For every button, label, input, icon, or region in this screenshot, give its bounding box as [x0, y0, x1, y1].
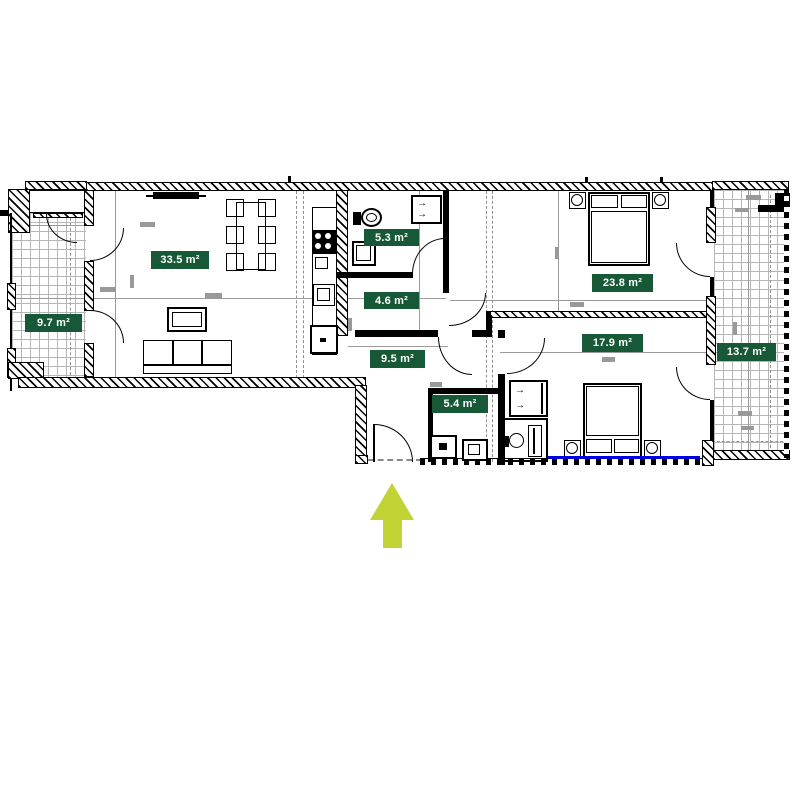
- hall-door-arc: [449, 293, 486, 326]
- wall-bottom-living: [18, 377, 366, 388]
- room-area-badge: 13.7 m²: [717, 343, 776, 361]
- wall-seg: [706, 207, 716, 243]
- sofa: [143, 340, 232, 374]
- stove-burner: [315, 233, 321, 239]
- room-area-badge: 4.6 m²: [364, 292, 419, 309]
- wall-entrance-foot: [355, 455, 368, 464]
- bedroom2-balcony-door-arc: [676, 367, 710, 400]
- dimension-line: [348, 346, 448, 347]
- shower-line: [533, 428, 535, 454]
- room-area-badge: 17.9 m²: [582, 334, 643, 352]
- kitchen-appliance: [315, 257, 328, 269]
- room-area-badge: 5.3 m²: [364, 229, 419, 246]
- wall-seg: [7, 283, 16, 310]
- dim-mark: [602, 357, 615, 362]
- wall-laundry-top: [428, 388, 498, 394]
- lamp: [654, 194, 666, 206]
- lamp: [571, 194, 583, 206]
- pillow: [614, 439, 639, 453]
- dim-mark: [746, 195, 761, 200]
- dim-mark: [738, 411, 752, 416]
- axis-line: [712, 441, 788, 442]
- dim-mark: [205, 293, 222, 298]
- axis-line: [492, 186, 493, 462]
- flow-arrow-icon: →: [417, 199, 440, 209]
- wardrobe-rod: [541, 383, 543, 414]
- cabinet-mark: [320, 338, 326, 342]
- washing-machine-door: [439, 443, 447, 450]
- bath-sink-basin: [356, 245, 371, 261]
- room-area-badge: 9.5 m²: [370, 350, 425, 368]
- dim-mark: [348, 318, 352, 331]
- window-marker: [548, 456, 700, 459]
- hallway-door-arc: [438, 337, 472, 375]
- entrance-door-arc: [374, 424, 413, 462]
- dim-mark: [741, 426, 754, 430]
- dim-mark: [130, 275, 134, 288]
- bedroom1-balcony-door-arc: [676, 243, 710, 277]
- entrance-arrow-stem: [383, 519, 402, 548]
- wall-balcony-right-west: [710, 190, 714, 207]
- wall-pier: [84, 343, 94, 377]
- flow-arrow-icon: →: [417, 210, 440, 220]
- balcony-door-arc: [90, 228, 124, 261]
- balcony-door-arc: [90, 310, 124, 343]
- kitchen-sink-basin: [317, 288, 330, 301]
- floor-plan: → → → → 33.5 m² 9.7 m² 5.3 m² 4.6 m² 9.5…: [0, 0, 800, 800]
- dim-mark: [140, 222, 155, 227]
- axis-line: [303, 186, 304, 378]
- coffee-table-inner: [172, 312, 202, 327]
- stove-burner: [325, 243, 331, 249]
- mattress: [586, 386, 639, 436]
- axis-line: [770, 195, 771, 453]
- entrance-door-leaf: [373, 424, 375, 462]
- wall-hallway-north: [355, 330, 438, 337]
- washing-machine-door: [468, 444, 480, 455]
- pillow: [591, 195, 618, 208]
- dining-table: [236, 202, 266, 270]
- wall-top: [85, 182, 714, 191]
- wall-seg: [702, 440, 714, 466]
- shower-tray: [528, 425, 542, 457]
- wall-balcony-right-bottom: [712, 450, 790, 460]
- axis-line: [296, 186, 297, 378]
- tv: [153, 192, 199, 199]
- dimension-line: [115, 190, 116, 378]
- dim-mark: [100, 287, 116, 292]
- lamp: [566, 442, 578, 454]
- wall-seg: [706, 296, 716, 365]
- toilet-bowl-inner: [366, 213, 377, 222]
- sofa-back-line: [144, 364, 231, 366]
- wall-entrance: [355, 385, 367, 457]
- room-area-badge: 23.8 m²: [592, 274, 653, 292]
- dim-mark: [733, 322, 737, 335]
- dimension-line: [450, 300, 712, 301]
- dim-mark: [570, 302, 584, 307]
- bedroom2-door-arc: [507, 338, 545, 374]
- wall-balcony-right-west: [710, 277, 714, 296]
- dim-mark: [555, 247, 559, 259]
- lamp: [646, 442, 658, 454]
- dim-mark: [430, 382, 442, 387]
- wall-pier: [84, 261, 94, 311]
- room-area-badge: 9.7 m²: [25, 314, 82, 332]
- toilet-tank: [353, 212, 361, 225]
- wall-balcony-right-top: [712, 181, 789, 190]
- sofa-divider: [201, 341, 203, 365]
- boundary-dashed-right: [784, 190, 789, 458]
- stove-burner: [325, 233, 331, 239]
- vent-shaft: → →: [411, 195, 442, 224]
- wall-bedroom-separator: [490, 311, 713, 318]
- toilet-bowl: [509, 433, 524, 448]
- mattress: [591, 211, 647, 263]
- room-area-badge: 5.4 m²: [432, 395, 488, 413]
- window-top-left: [28, 190, 88, 213]
- entrance-arrow-icon: [370, 483, 414, 520]
- sofa-divider: [172, 341, 174, 365]
- wall-bath-hall: [337, 272, 413, 278]
- wall-bedroom2-west: [498, 330, 505, 338]
- wall-top-left-band: [25, 181, 87, 190]
- pillow: [621, 195, 647, 208]
- dim-mark: [735, 208, 748, 212]
- wall-pier: [84, 190, 94, 226]
- pillow: [586, 439, 612, 453]
- wall-kitchen-bath: [336, 190, 348, 336]
- room-area-badge: 33.5 m²: [151, 251, 209, 269]
- stove-burner: [315, 243, 321, 249]
